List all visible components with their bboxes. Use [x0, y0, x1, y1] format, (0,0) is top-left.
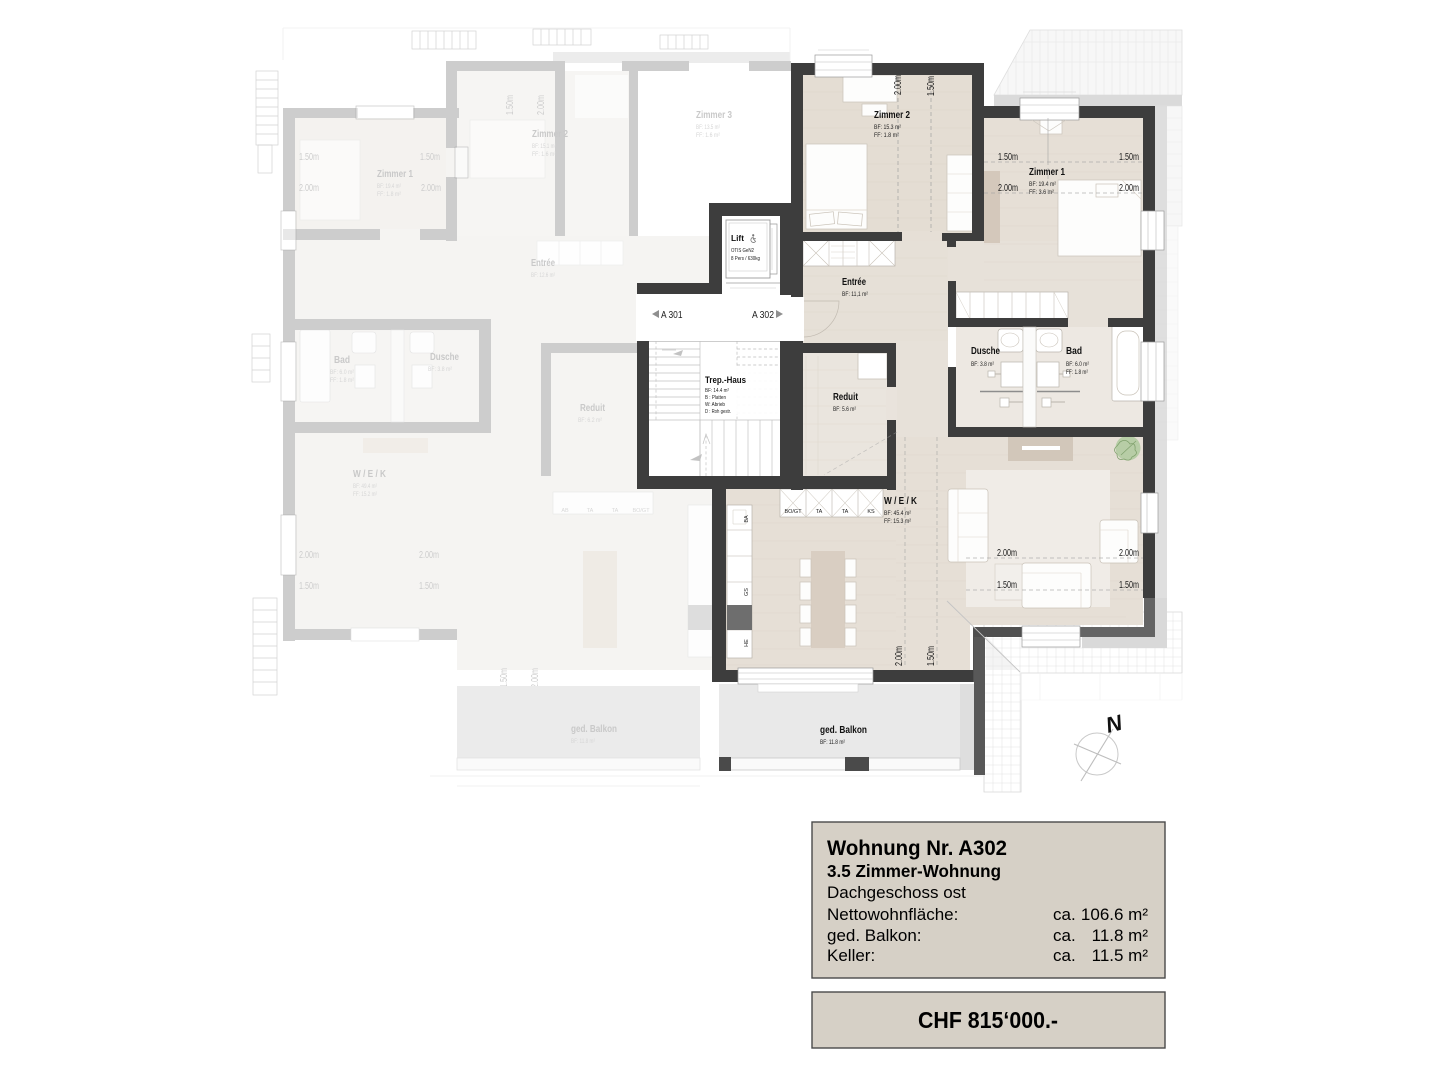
svg-text:2.00m: 2.00m — [894, 646, 905, 666]
svg-text:1.50m: 1.50m — [299, 152, 319, 163]
svg-text:2.00m: 2.00m — [998, 183, 1018, 194]
svg-text:Wohnung Nr. A302: Wohnung Nr. A302 — [827, 837, 1007, 860]
svg-text:2.00m: 2.00m — [1119, 548, 1139, 559]
svg-text:BF: 19.4 m²: BF: 19.4 m² — [1029, 181, 1057, 188]
svg-text:ca.: ca. — [1053, 905, 1076, 924]
svg-text:Reduit: Reduit — [833, 391, 858, 403]
svg-text:TA: TA — [816, 509, 823, 515]
svg-text:Zimmer 2: Zimmer 2 — [874, 109, 910, 121]
svg-text:BA: BA — [744, 515, 750, 523]
svg-text:BF: 5.6 m²: BF: 5.6 m² — [833, 406, 857, 413]
svg-text:FF: 1.6 m²: FF: 1.6 m² — [532, 151, 557, 158]
svg-text:W / E / K: W / E / K — [884, 495, 917, 507]
svg-text:TA: TA — [842, 509, 849, 515]
svg-text:BF: 6.2 m²: BF: 6.2 m² — [578, 417, 603, 424]
svg-text:1.50m: 1.50m — [997, 580, 1017, 591]
svg-text:A 302: A 302 — [752, 309, 774, 321]
svg-text:TA: TA — [612, 508, 619, 514]
svg-text:1.50m: 1.50m — [926, 646, 937, 666]
svg-text:Trep.-Haus: Trep.-Haus — [705, 375, 746, 386]
svg-text:FF: 1.8 m²: FF: 1.8 m² — [330, 377, 355, 384]
svg-text:1.50m: 1.50m — [998, 152, 1018, 163]
svg-text:Reduit: Reduit — [580, 402, 605, 414]
svg-text:BF: 14.4 m²: BF: 14.4 m² — [705, 388, 729, 394]
svg-text:1.50m: 1.50m — [420, 152, 440, 163]
svg-text:Dachgeschoss ost: Dachgeschoss ost — [827, 883, 966, 902]
svg-text:BF: 6.0 m²: BF: 6.0 m² — [1066, 361, 1090, 368]
svg-text:W / E / K: W / E / K — [353, 468, 386, 480]
svg-text:2.00m: 2.00m — [893, 75, 904, 95]
svg-text:Dusche: Dusche — [971, 345, 1000, 357]
svg-text:1.50m: 1.50m — [499, 668, 510, 688]
svg-text:FF: 1.6 m²: FF: 1.6 m² — [696, 132, 721, 139]
svg-text:BO/GT: BO/GT — [784, 509, 802, 515]
svg-text:11.8 m²: 11.8 m² — [1092, 926, 1149, 945]
svg-text:BF: 15.3 m²: BF: 15.3 m² — [874, 124, 902, 131]
svg-text:GS: GS — [744, 588, 750, 596]
svg-text:FF: 1.8 m²: FF: 1.8 m² — [874, 132, 900, 139]
svg-text:BF: 11,1 m²: BF: 11,1 m² — [842, 291, 869, 298]
svg-text:BF: 3.8 m²: BF: 3.8 m² — [971, 361, 995, 368]
svg-text:1.50m: 1.50m — [1119, 152, 1139, 163]
svg-text:BF: 13.5 m²: BF: 13.5 m² — [696, 124, 721, 131]
svg-text:W: Abrieb: W: Abrieb — [705, 402, 725, 408]
svg-text:CHF 815‘000.-: CHF 815‘000.- — [918, 1007, 1058, 1033]
svg-text:106.6 m²: 106.6 m² — [1081, 905, 1148, 924]
svg-text:2.00m: 2.00m — [1119, 183, 1139, 194]
svg-text:TA: TA — [587, 508, 594, 514]
svg-text:Zimmer 2: Zimmer 2 — [532, 128, 568, 140]
svg-text:2.00m: 2.00m — [530, 668, 541, 688]
svg-text:11.5 m²: 11.5 m² — [1092, 946, 1149, 965]
svg-text:OTIS GeN2: OTIS GeN2 — [731, 248, 754, 254]
svg-text:FF: 1.8 m²: FF: 1.8 m² — [1066, 369, 1089, 376]
svg-text:FF: 3.6 m²: FF: 3.6 m² — [1029, 189, 1055, 196]
svg-text:BF: 11.8 m²: BF: 11.8 m² — [571, 738, 596, 745]
svg-text:BF: 19.4 m²: BF: 19.4 m² — [377, 183, 402, 190]
svg-text:BF: 45.4 m²: BF: 45.4 m² — [884, 510, 912, 517]
svg-text:1.50m: 1.50m — [926, 76, 937, 96]
svg-text:2.00m: 2.00m — [997, 548, 1017, 559]
svg-text:Lift: Lift — [731, 233, 744, 243]
svg-text:2.00m: 2.00m — [536, 95, 547, 115]
svg-text:1.50m: 1.50m — [505, 95, 516, 115]
svg-text:Zimmer 3: Zimmer 3 — [696, 109, 732, 121]
svg-text:FF: 15.3 m²: FF: 15.3 m² — [884, 518, 912, 525]
svg-text:Dusche: Dusche — [430, 351, 459, 363]
svg-text:8 Pers / 630kg: 8 Pers / 630kg — [731, 256, 760, 262]
svg-text:Nettowohnfläche:: Nettowohnfläche: — [827, 905, 958, 924]
svg-text:HE: HE — [744, 639, 750, 647]
svg-text:Entrée: Entrée — [531, 257, 555, 269]
svg-text:ca.: ca. — [1053, 926, 1076, 945]
svg-text:Zimmer 1: Zimmer 1 — [1029, 166, 1065, 178]
svg-text:2.00m: 2.00m — [299, 183, 319, 194]
svg-text:D : Roh gestr.: D : Roh gestr. — [705, 409, 731, 415]
svg-text:Bad: Bad — [1066, 345, 1082, 357]
svg-text:1.50m: 1.50m — [299, 581, 319, 592]
svg-text:BF: 3.8 m²: BF: 3.8 m² — [428, 366, 453, 373]
svg-text:3.5 Zimmer-Wohnung: 3.5 Zimmer-Wohnung — [827, 861, 1001, 881]
svg-text:A 301: A 301 — [661, 309, 683, 321]
svg-text:BF: 12.6 m²: BF: 12.6 m² — [531, 272, 556, 279]
svg-text:Entrée: Entrée — [842, 276, 866, 288]
svg-text:2.00m: 2.00m — [421, 183, 441, 194]
svg-text:KS: KS — [867, 509, 875, 515]
svg-text:2.00m: 2.00m — [299, 550, 319, 561]
svg-text:2.00m: 2.00m — [419, 550, 439, 561]
svg-text:ca.: ca. — [1053, 946, 1076, 965]
svg-text:ged. Balkon:: ged. Balkon: — [827, 926, 922, 945]
svg-text:BF: 6.0 m²: BF: 6.0 m² — [330, 369, 355, 376]
svg-text:1.50m: 1.50m — [419, 581, 439, 592]
svg-text:BO/GT: BO/GT — [632, 508, 650, 514]
svg-text:ged. Balkon: ged. Balkon — [820, 724, 867, 736]
svg-text:FF: 1.8 m²: FF: 1.8 m² — [377, 191, 402, 198]
svg-text:FF: 15.2 m²: FF: 15.2 m² — [353, 491, 378, 498]
svg-text:BF: 49.4 m²: BF: 49.4 m² — [353, 483, 378, 490]
svg-text:ged. Balkon: ged. Balkon — [571, 724, 617, 735]
svg-text:BF: 15.1 m²: BF: 15.1 m² — [532, 143, 557, 150]
svg-text:Keller:: Keller: — [827, 946, 875, 965]
svg-text:B : Platten: B : Platten — [705, 395, 726, 401]
svg-text:AB: AB — [561, 508, 569, 514]
svg-text:1.50m: 1.50m — [1119, 580, 1139, 591]
svg-text:Zimmer 1: Zimmer 1 — [377, 168, 413, 180]
svg-text:BF: 11.8 m²: BF: 11.8 m² — [820, 739, 846, 746]
svg-text:Bad: Bad — [334, 354, 350, 366]
